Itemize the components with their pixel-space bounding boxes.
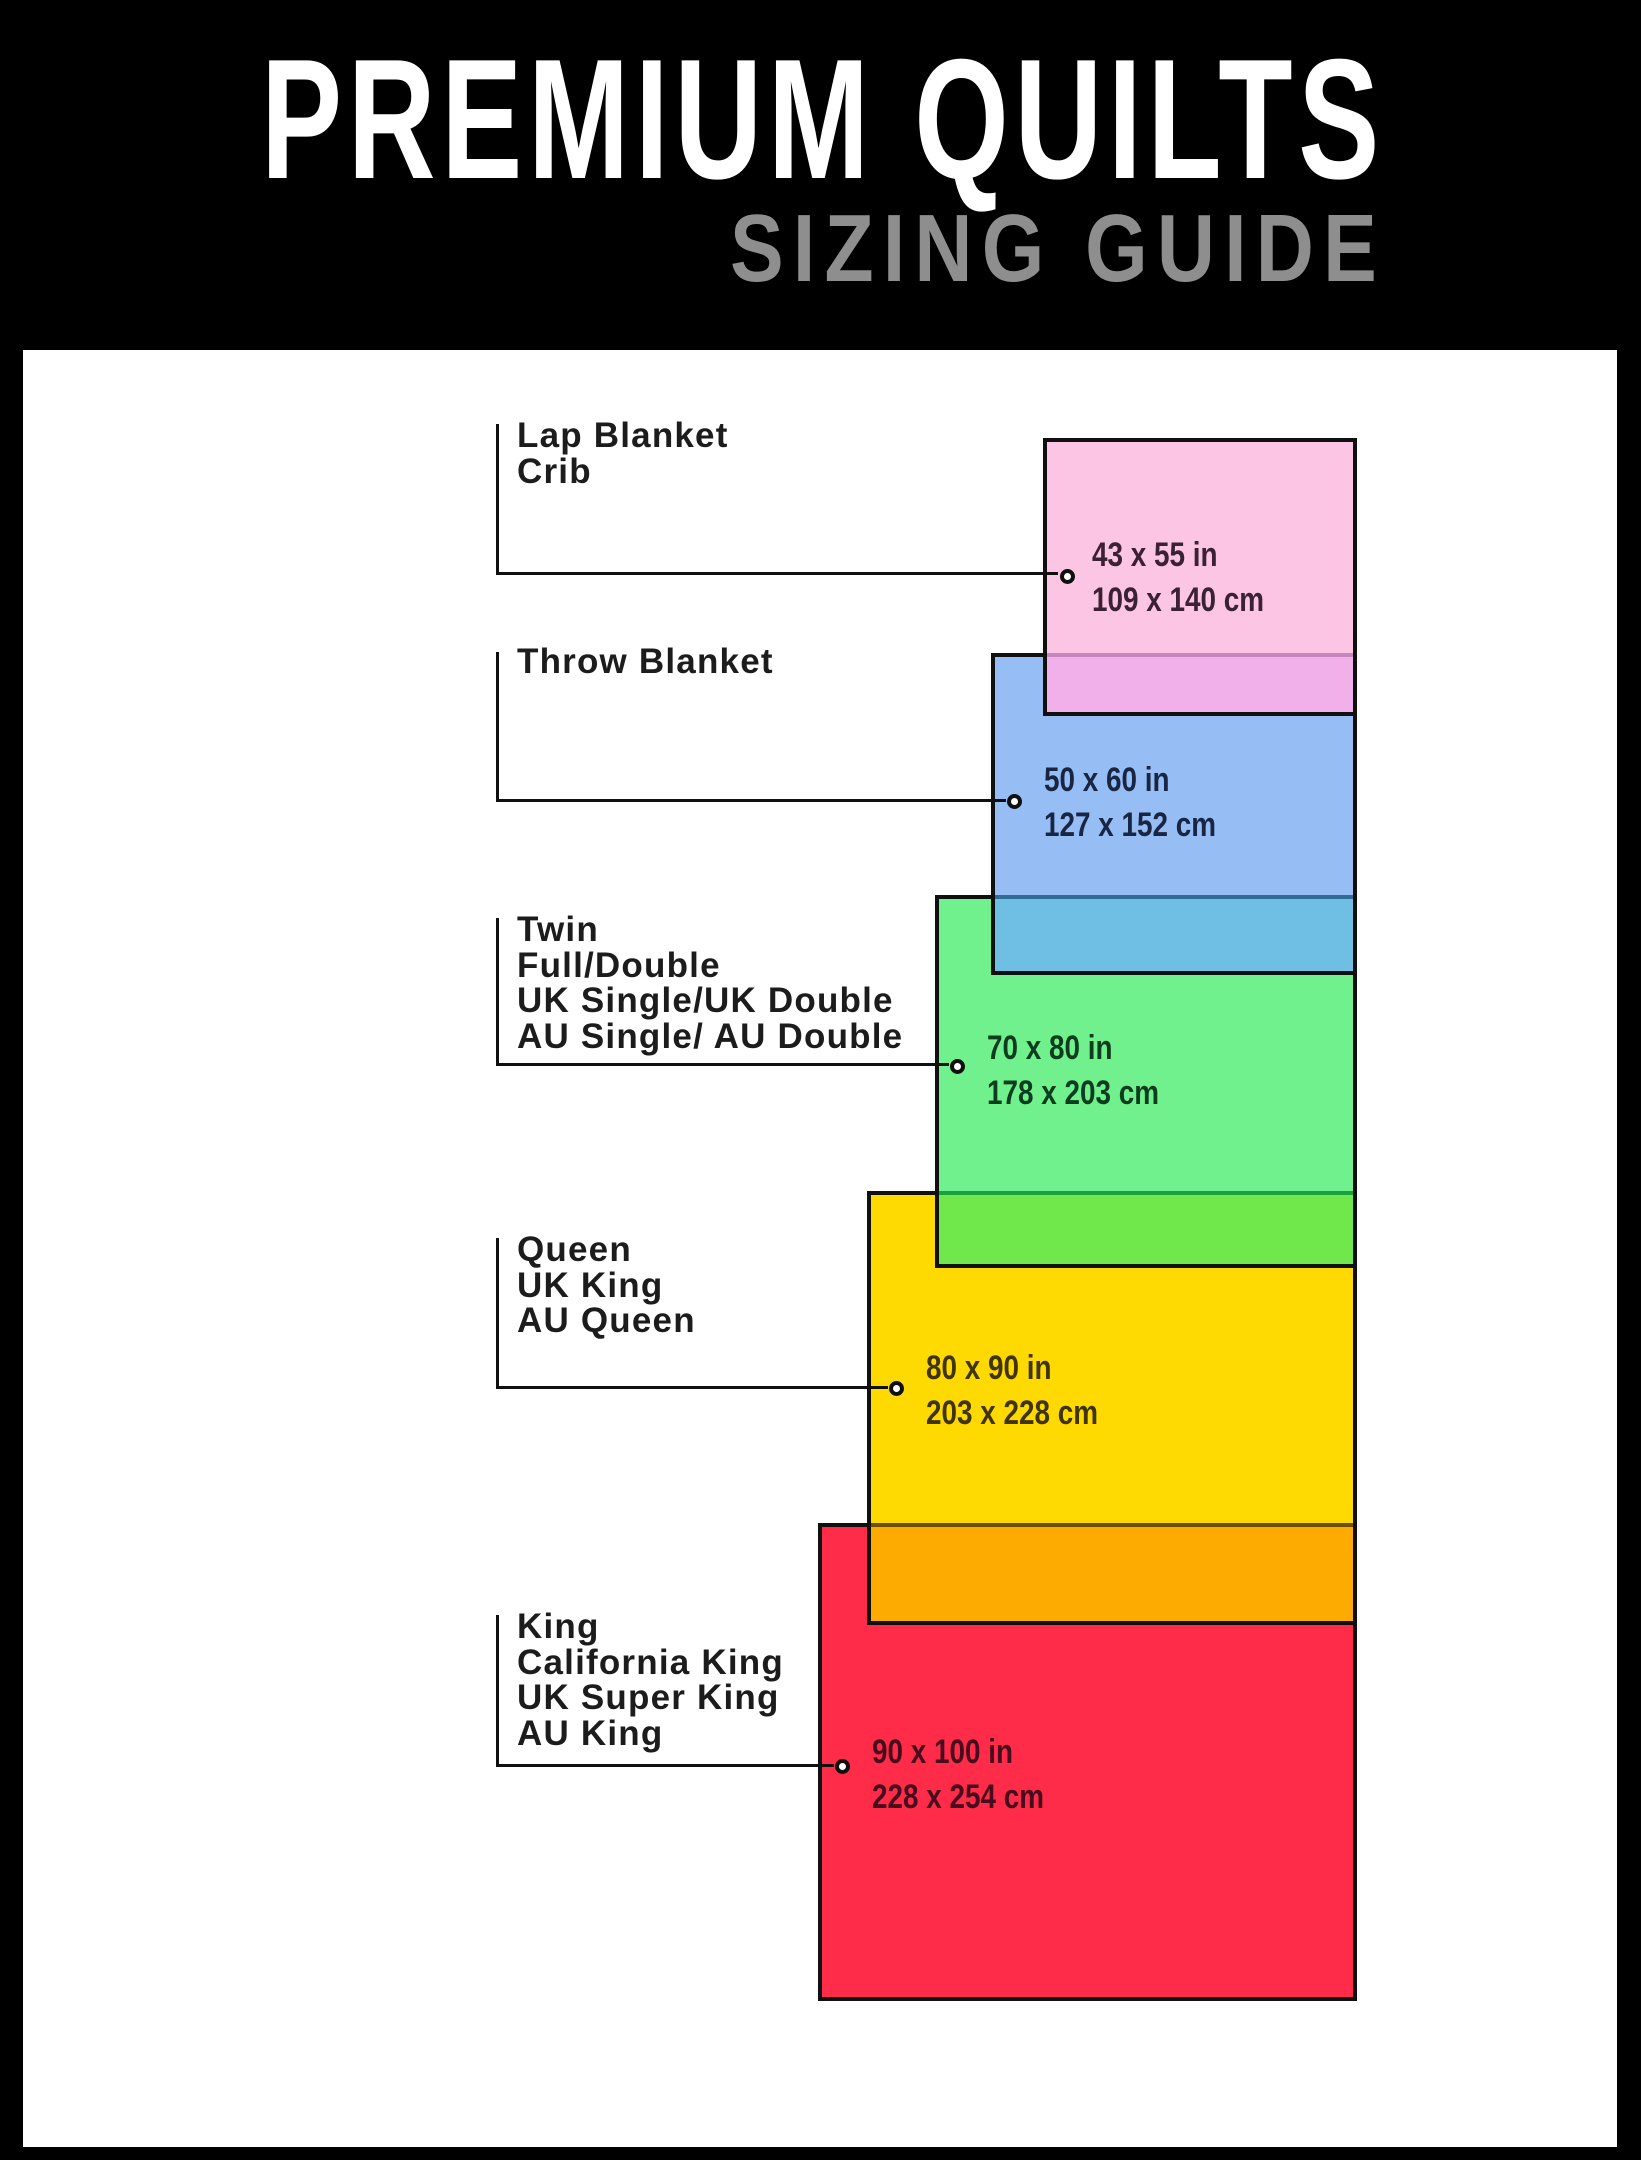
- svg-text:PREMIUM QUILTS: PREMIUM QUILTS: [261, 24, 1385, 215]
- svg-text:SIZING GUIDE: SIZING GUIDE: [730, 195, 1386, 302]
